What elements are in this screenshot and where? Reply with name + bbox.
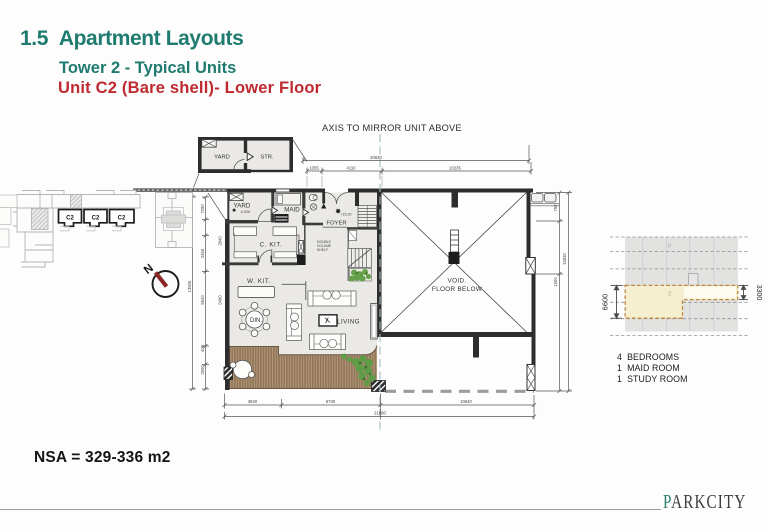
svg-text:3940: 3940: [248, 399, 258, 404]
svg-text:5640: 5640: [200, 295, 205, 305]
svg-text:21080: 21080: [374, 411, 386, 416]
svg-text:2465: 2465: [200, 248, 205, 258]
svg-text:1055: 1055: [309, 166, 319, 171]
svg-text:4110: 4110: [346, 166, 356, 171]
svg-text:W. KIT.: W. KIT.: [247, 278, 271, 285]
svg-text:2840: 2840: [218, 236, 223, 246]
svg-text:15830: 15830: [562, 253, 567, 265]
svg-text:FOYER: FOYER: [326, 221, 346, 227]
svg-text:3300: 3300: [755, 285, 762, 301]
svg-text:1500: 1500: [553, 277, 558, 287]
svg-text:YARD: YARD: [214, 155, 230, 161]
svg-text:13505: 13505: [187, 280, 192, 292]
svg-text:-0.006: -0.006: [240, 210, 250, 214]
svg-text:C. KIT.: C. KIT.: [260, 242, 283, 249]
svg-text:20630: 20630: [370, 155, 382, 160]
svg-text:6600: 6600: [601, 294, 610, 311]
svg-text:750: 750: [553, 204, 558, 212]
svg-text:7290: 7290: [200, 204, 205, 214]
svg-text:LIVING: LIVING: [337, 319, 360, 326]
svg-text:T2: T2: [667, 243, 672, 248]
svg-text:10640: 10640: [460, 399, 472, 404]
svg-text:+15.20: +15.20: [340, 213, 351, 217]
svg-text:DIN.: DIN.: [250, 318, 262, 324]
svg-text:5480: 5480: [218, 295, 223, 305]
svg-text:C2: C2: [667, 290, 672, 296]
svg-text:C2: C2: [66, 216, 74, 222]
svg-text:FLOOR BELOW: FLOOR BELOW: [432, 286, 483, 293]
svg-text:STR.: STR.: [260, 155, 274, 161]
svg-text:SHELF: SHELF: [317, 248, 328, 252]
svg-text:10235: 10235: [449, 166, 461, 171]
svg-text:C2: C2: [92, 216, 100, 222]
svg-text:N: N: [142, 262, 156, 277]
svg-text:VOID.: VOID.: [448, 278, 467, 285]
svg-text:C2: C2: [118, 216, 126, 222]
svg-text:400: 400: [200, 344, 205, 352]
svg-text:MAID: MAID: [284, 207, 300, 214]
svg-text:2500: 2500: [200, 365, 205, 375]
svg-text:YARD: YARD: [234, 203, 251, 210]
svg-text:6730: 6730: [326, 399, 336, 404]
